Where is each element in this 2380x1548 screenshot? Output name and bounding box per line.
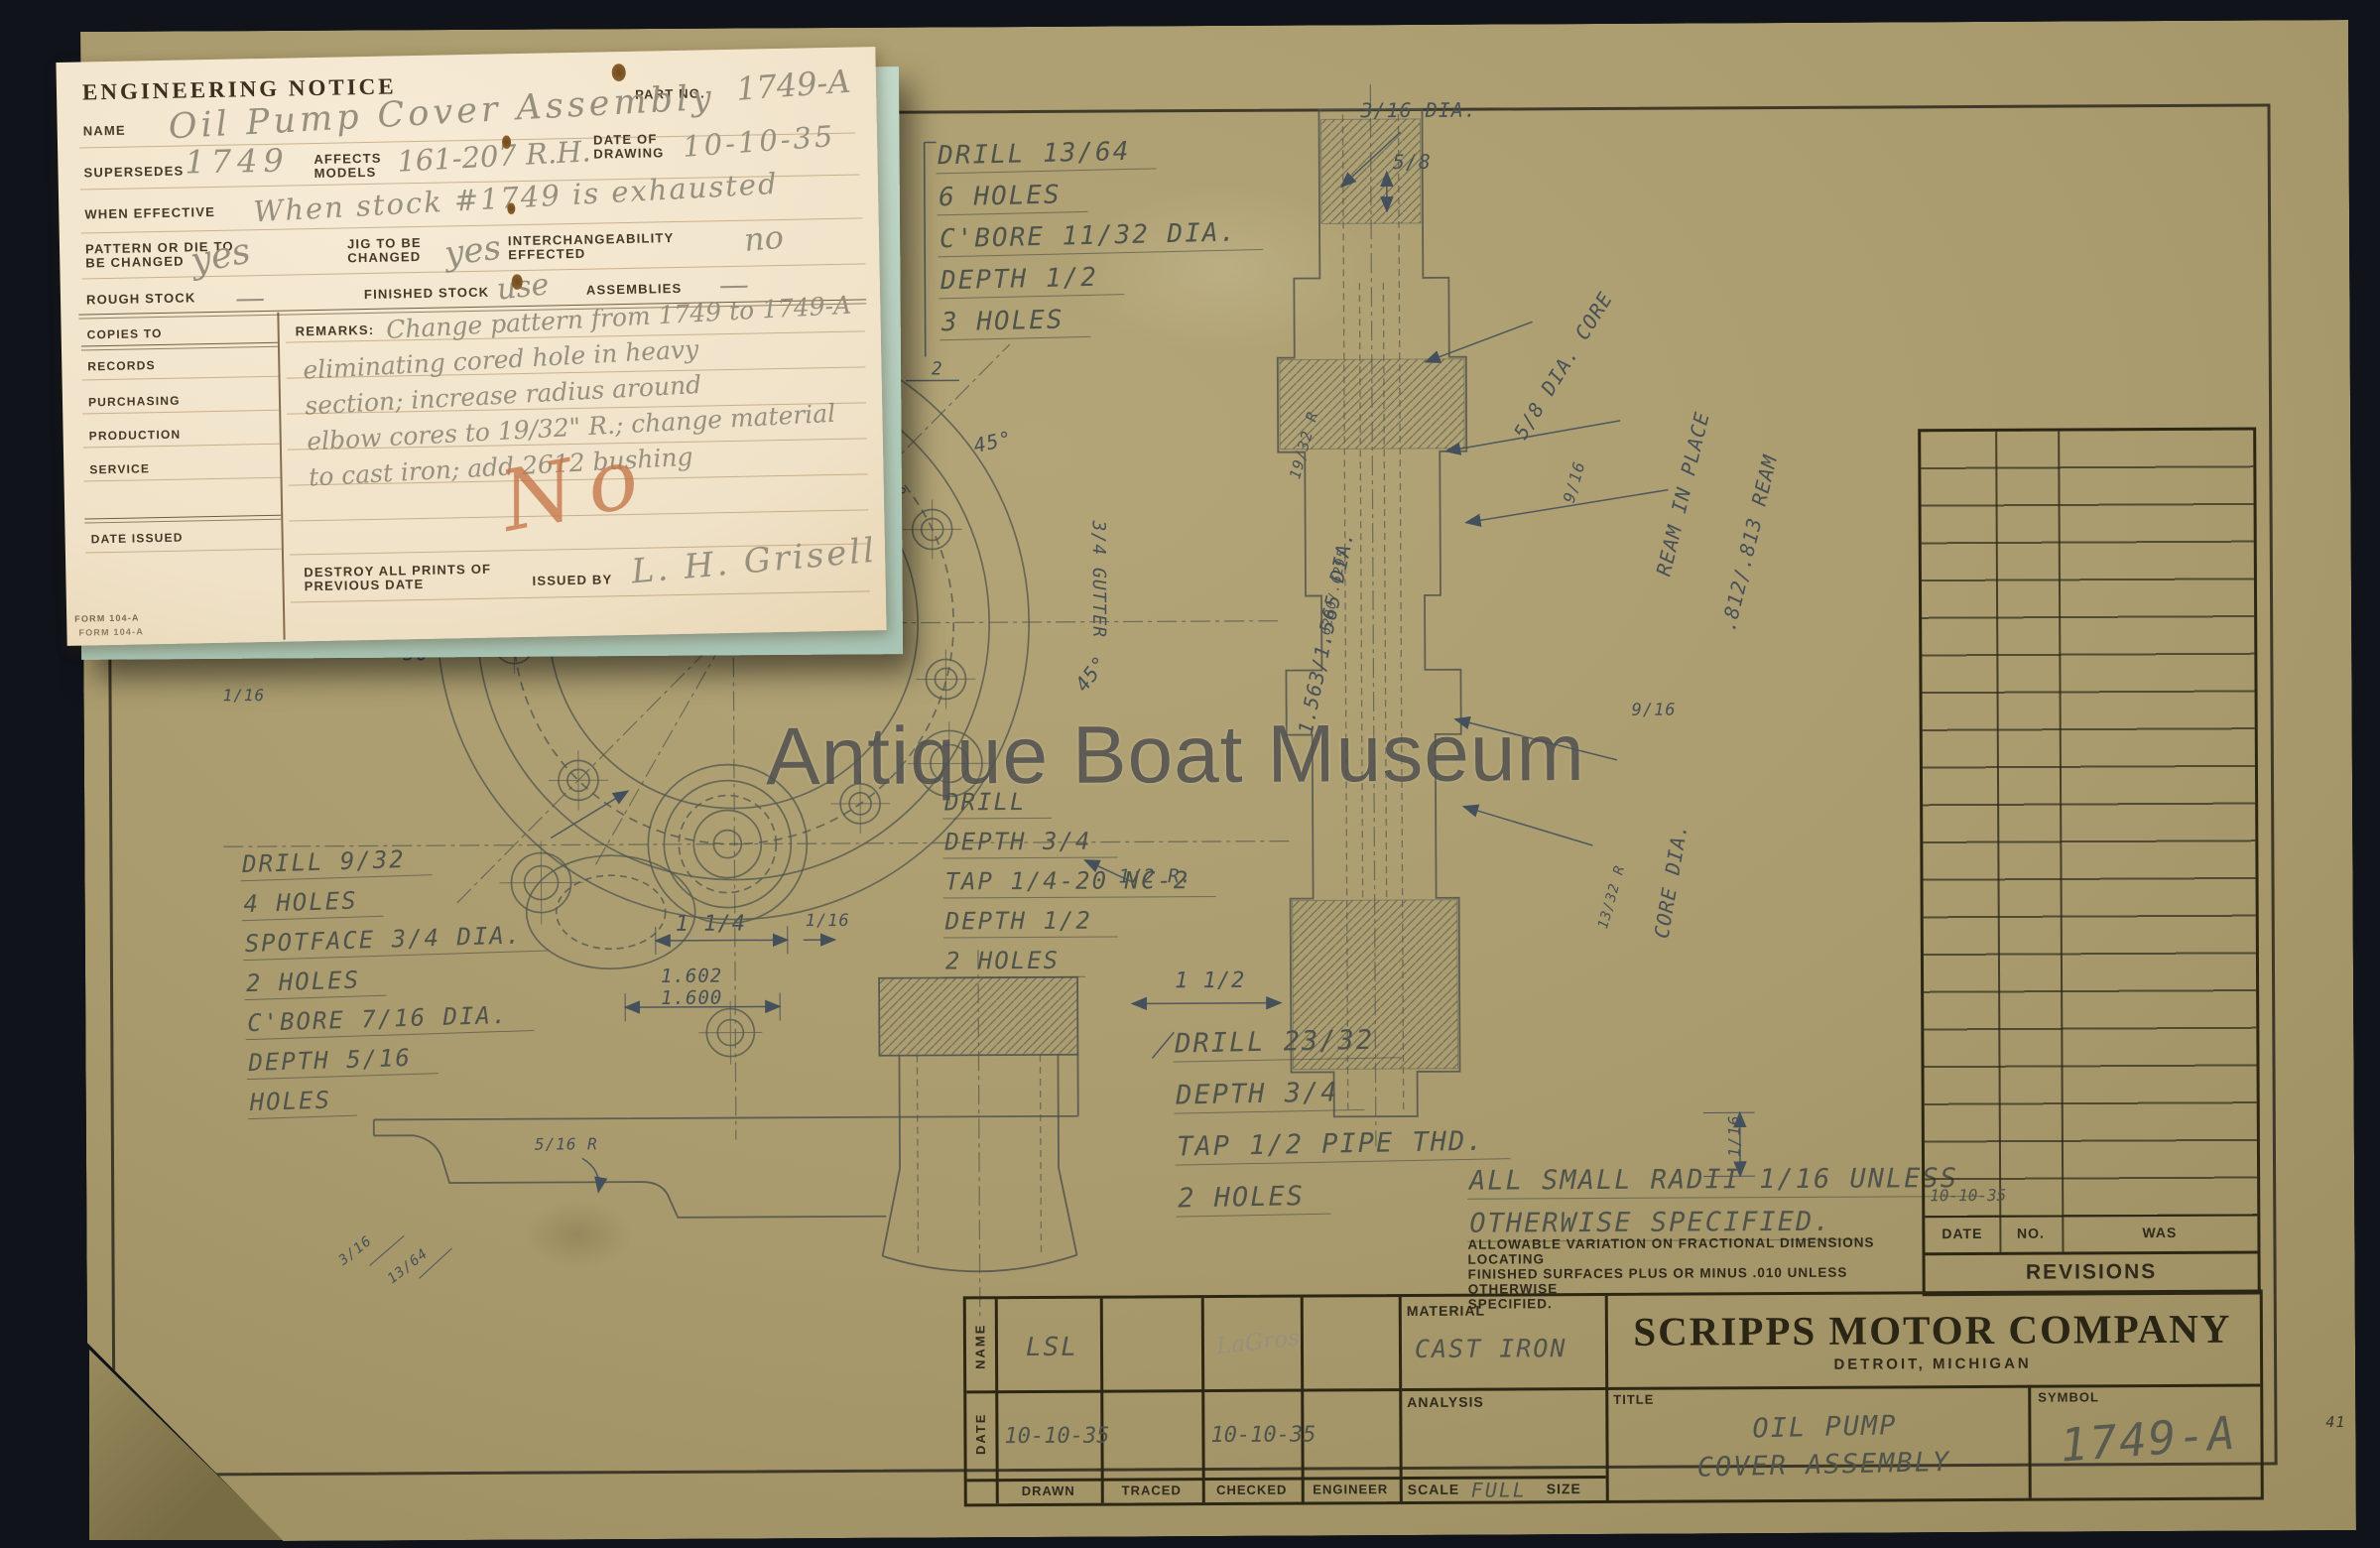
note-line: DRILL 23/32: [1173, 1024, 1400, 1062]
destroy-prints-label: DESTROY ALL PRINTS OF PREVIOUS DATE: [304, 562, 517, 593]
ink-stain: [502, 135, 511, 149]
interchangeability-value: no: [742, 218, 785, 259]
ink-stain: [612, 64, 626, 81]
note-line: 2 HOLES: [943, 947, 1085, 978]
tb-title-label: TITLE: [1613, 1392, 1654, 1407]
tb-grid: [995, 1299, 999, 1503]
jig-label: JIG TO BE CHANGED: [347, 235, 457, 265]
card-heavy-rule: [84, 515, 281, 524]
note-line: TAP 1/4-20 NC-2: [942, 866, 1215, 898]
note-line: DRILL 9/32: [240, 844, 432, 881]
tb-analysis-label: ANALYSIS: [1407, 1394, 1484, 1410]
issued-by-label: ISSUED BY: [532, 572, 612, 588]
supersedes-value: 1749: [185, 141, 290, 181]
tb-company-city: DETROIT, MICHIGAN: [1605, 1354, 2260, 1374]
tb-name-row-label: NAME: [972, 1319, 987, 1374]
copies-row-label: PRODUCTION: [89, 428, 182, 444]
tb-drawn-label: DRAWN: [996, 1483, 1101, 1499]
tb-company-name: SCRIPPS MOTOR COMPANY: [1605, 1305, 2260, 1355]
revisions-line: [1925, 1215, 2257, 1219]
rough-stock-label: ROUGH STOCK: [86, 290, 196, 307]
card-rule: [82, 376, 279, 381]
tb-grid: [2028, 1385, 2032, 1498]
card-column-divider: [277, 313, 285, 640]
museum-watermark: Antique Boat Museum: [640, 706, 1711, 805]
tb-material-label: MATERIAL: [1407, 1303, 1485, 1319]
tb-checked-date: 10-10-35: [1210, 1422, 1315, 1448]
tb-size-label: SIZE: [1547, 1481, 1581, 1496]
tb-drawn-name: LSL: [1026, 1333, 1078, 1362]
revision-entry-date: 10-10-35: [1930, 1186, 2006, 1205]
tb-grid: [1201, 1298, 1205, 1502]
tb-engineer-label: ENGINEER: [1302, 1482, 1400, 1497]
note-line: 2 HOLES: [244, 966, 387, 1000]
card-rule: [291, 590, 870, 602]
note-line: DEPTH 1/2: [939, 262, 1125, 299]
tb-checked-label: CHECKED: [1202, 1483, 1302, 1498]
card-rule: [81, 342, 278, 351]
tb-grid: [1100, 1299, 1104, 1503]
note-line: 4 HOLES: [241, 886, 384, 921]
card-rule: [82, 410, 279, 415]
note-line: DEPTH 3/4: [942, 828, 1117, 859]
finished-stock-value: use: [495, 267, 551, 307]
ink-stain: [512, 274, 523, 290]
revisions-was-header: WAS: [2062, 1225, 2257, 1241]
note-tap-quarter: DRILL DEPTH 3/4 TAP 1/4-20 NC-2 DEPTH 1/…: [942, 787, 1216, 986]
tb-symbol-label: SYMBOL: [2038, 1389, 2099, 1404]
tb-grid: [1301, 1298, 1305, 1502]
scanned-engineering-drawing: { "watermark": "Antique Boat Museum", "c…: [0, 0, 2380, 1548]
form-number: FORM 104-A: [74, 612, 140, 623]
note-line: 6 HOLES: [937, 180, 1087, 215]
note-line: DEPTH 3/4: [1174, 1077, 1365, 1114]
revisions-rows: [1921, 431, 2257, 1219]
tb-checked-signature: LaGros: [1215, 1325, 1301, 1359]
tb-material-value: CAST IRON: [1415, 1334, 1567, 1363]
note-line: ALL SMALL RADII 1/16 UNLESS: [1467, 1163, 1984, 1200]
tb-drawn-date: 10-10-35: [1004, 1424, 1109, 1450]
jig-value: yes: [442, 228, 503, 275]
tb-title-line1: OIL PUMP: [1752, 1410, 1898, 1444]
interchangeability-label: INTERCHANGEABILITY EFFECTED: [508, 230, 716, 262]
tb-scale-label: SCALE: [1408, 1482, 1460, 1497]
tb-symbol-value: 1749-A: [2059, 1405, 2239, 1472]
revisions-table: 10-10-35 DATE NO. WAS REVISIONS: [1918, 428, 2261, 1297]
tb-grid: [1399, 1297, 1403, 1501]
note-drill-9-32: DRILL 9/32 4 HOLES SPOTFACE 3/4 DIA. 2 H…: [240, 841, 554, 1129]
card-rule: [83, 444, 280, 449]
note-line: 2 HOLES: [1176, 1181, 1330, 1218]
note-line: 3 HOLES: [939, 305, 1090, 340]
note-line: C'BORE 11/32 DIA.: [938, 217, 1264, 257]
revisions-no-header: NO.: [1999, 1225, 2062, 1241]
copies-row-label: PURCHASING: [88, 394, 181, 410]
date-issued-label: DATE ISSUED: [91, 531, 184, 547]
note-drill-13-64: DRILL 13/64 6 HOLES C'BORE 11/32 DIA. DE…: [936, 134, 1266, 349]
revisions-date-header: DATE: [1925, 1225, 1999, 1241]
form-number: FORM 104-A: [78, 626, 144, 637]
revisions-title: REVISIONS: [1926, 1260, 2258, 1286]
tb-traced-label: TRACED: [1101, 1483, 1202, 1498]
copies-row-label: RECORDS: [87, 358, 156, 373]
note-drill-23-32: DRILL 23/32 DEPTH 3/4 TAP 1/2 PIPE THD. …: [1173, 1022, 1512, 1225]
note-line: DEPTH 1/2: [943, 907, 1118, 939]
when-effective-label: WHEN EFFECTIVE: [84, 204, 215, 222]
note-line: C'BORE 7/16 DIA.: [245, 1000, 535, 1040]
issued-by-signature: L. H. Grisell: [630, 531, 879, 592]
engineering-notice-card: ENGINEERING NOTICE PART NO. 1749-A NAME …: [56, 47, 886, 646]
note-line: ALLOWABLE VARIATION ON FRACTIONAL DIMENS…: [1467, 1234, 1934, 1266]
note-line: HOLES: [247, 1086, 357, 1119]
affects-models-label: AFFECTS MODELS: [313, 151, 394, 181]
copies-row-label: SERVICE: [89, 461, 150, 476]
date-of-drawing-value: 10-10-35: [682, 119, 836, 164]
remarks-label: REMARKS:: [296, 322, 375, 339]
revisions-line: [1925, 1251, 2257, 1256]
tb-scale-value: FULL: [1471, 1478, 1527, 1501]
title-block: NAME DATE LSL LaGros 10-10-35 10-10-35 D…: [963, 1289, 2264, 1506]
note-line: DRILL 13/64: [936, 136, 1157, 174]
part-no-value: 1749-A: [735, 63, 852, 108]
tb-date-row-label: DATE: [973, 1406, 988, 1462]
card-rule: [85, 549, 282, 554]
date-of-drawing-label: DATE OF DRAWING: [593, 132, 676, 162]
assemblies-label: ASSEMBLIES: [586, 281, 683, 298]
tb-title-line2: COVER ASSEMBLY: [1696, 1447, 1950, 1483]
name-label: NAME: [83, 123, 126, 139]
note-line: SPOTFACE 3/4 DIA.: [242, 921, 548, 962]
card-rule: [84, 477, 281, 482]
supersedes-label: SUPERSEDES: [83, 164, 184, 181]
ink-stain: [507, 202, 515, 214]
finished-stock-label: FINISHED STOCK: [364, 285, 490, 302]
note-line: DEPTH 5/16: [246, 1043, 438, 1080]
copies-to-label: COPIES TO: [87, 326, 163, 341]
note-line: TAP 1/2 PIPE THD.: [1175, 1125, 1511, 1165]
